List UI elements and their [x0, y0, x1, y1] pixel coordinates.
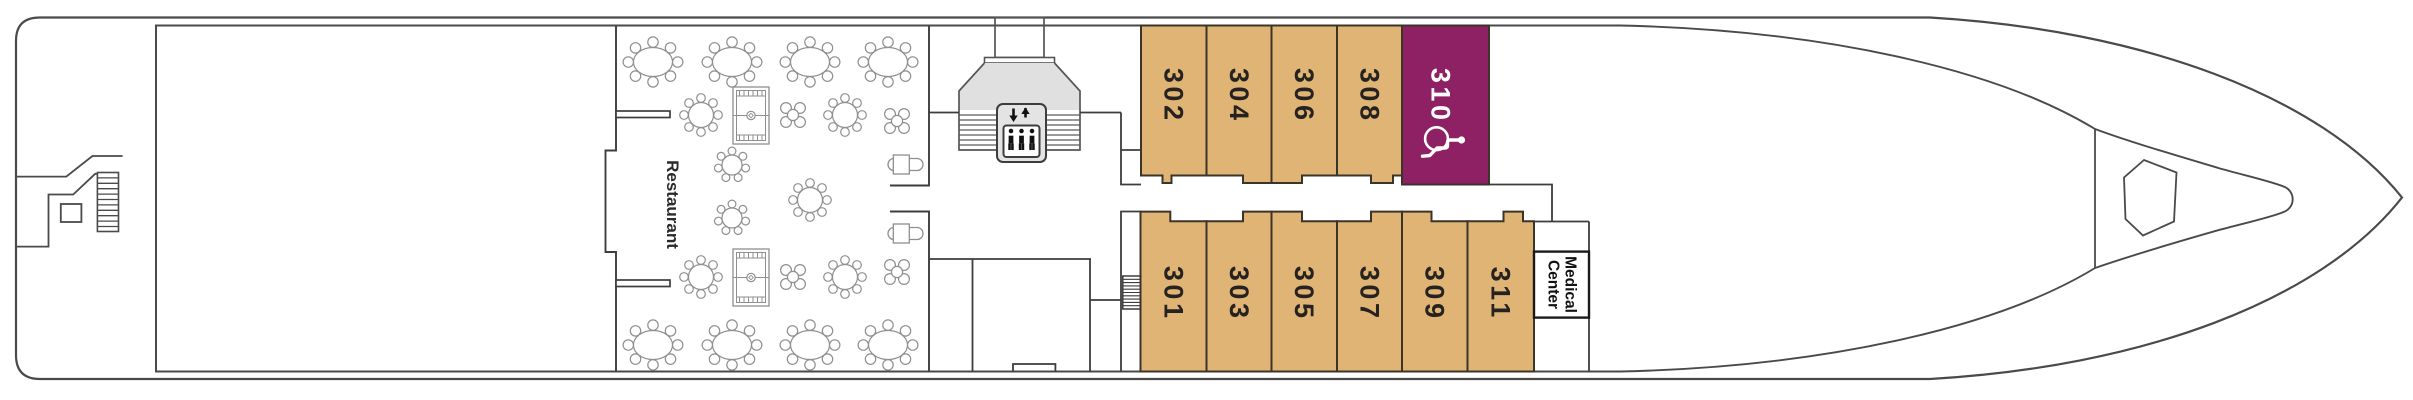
svg-text:311: 311: [1486, 267, 1516, 321]
svg-text:309: 309: [1420, 266, 1450, 322]
svg-text:Medical: Medical: [1562, 256, 1579, 313]
svg-text:303: 303: [1224, 266, 1254, 322]
svg-text:306: 306: [1289, 68, 1319, 124]
svg-text:Center: Center: [1545, 260, 1562, 309]
svg-text:Restaurant: Restaurant: [663, 160, 682, 249]
svg-text:310: 310: [1426, 68, 1456, 124]
svg-text:302: 302: [1159, 68, 1189, 124]
svg-text:301: 301: [1159, 266, 1189, 322]
svg-text:308: 308: [1355, 68, 1385, 124]
svg-text:307: 307: [1355, 266, 1385, 322]
svg-text:304: 304: [1224, 68, 1254, 124]
svg-text:305: 305: [1289, 266, 1319, 322]
